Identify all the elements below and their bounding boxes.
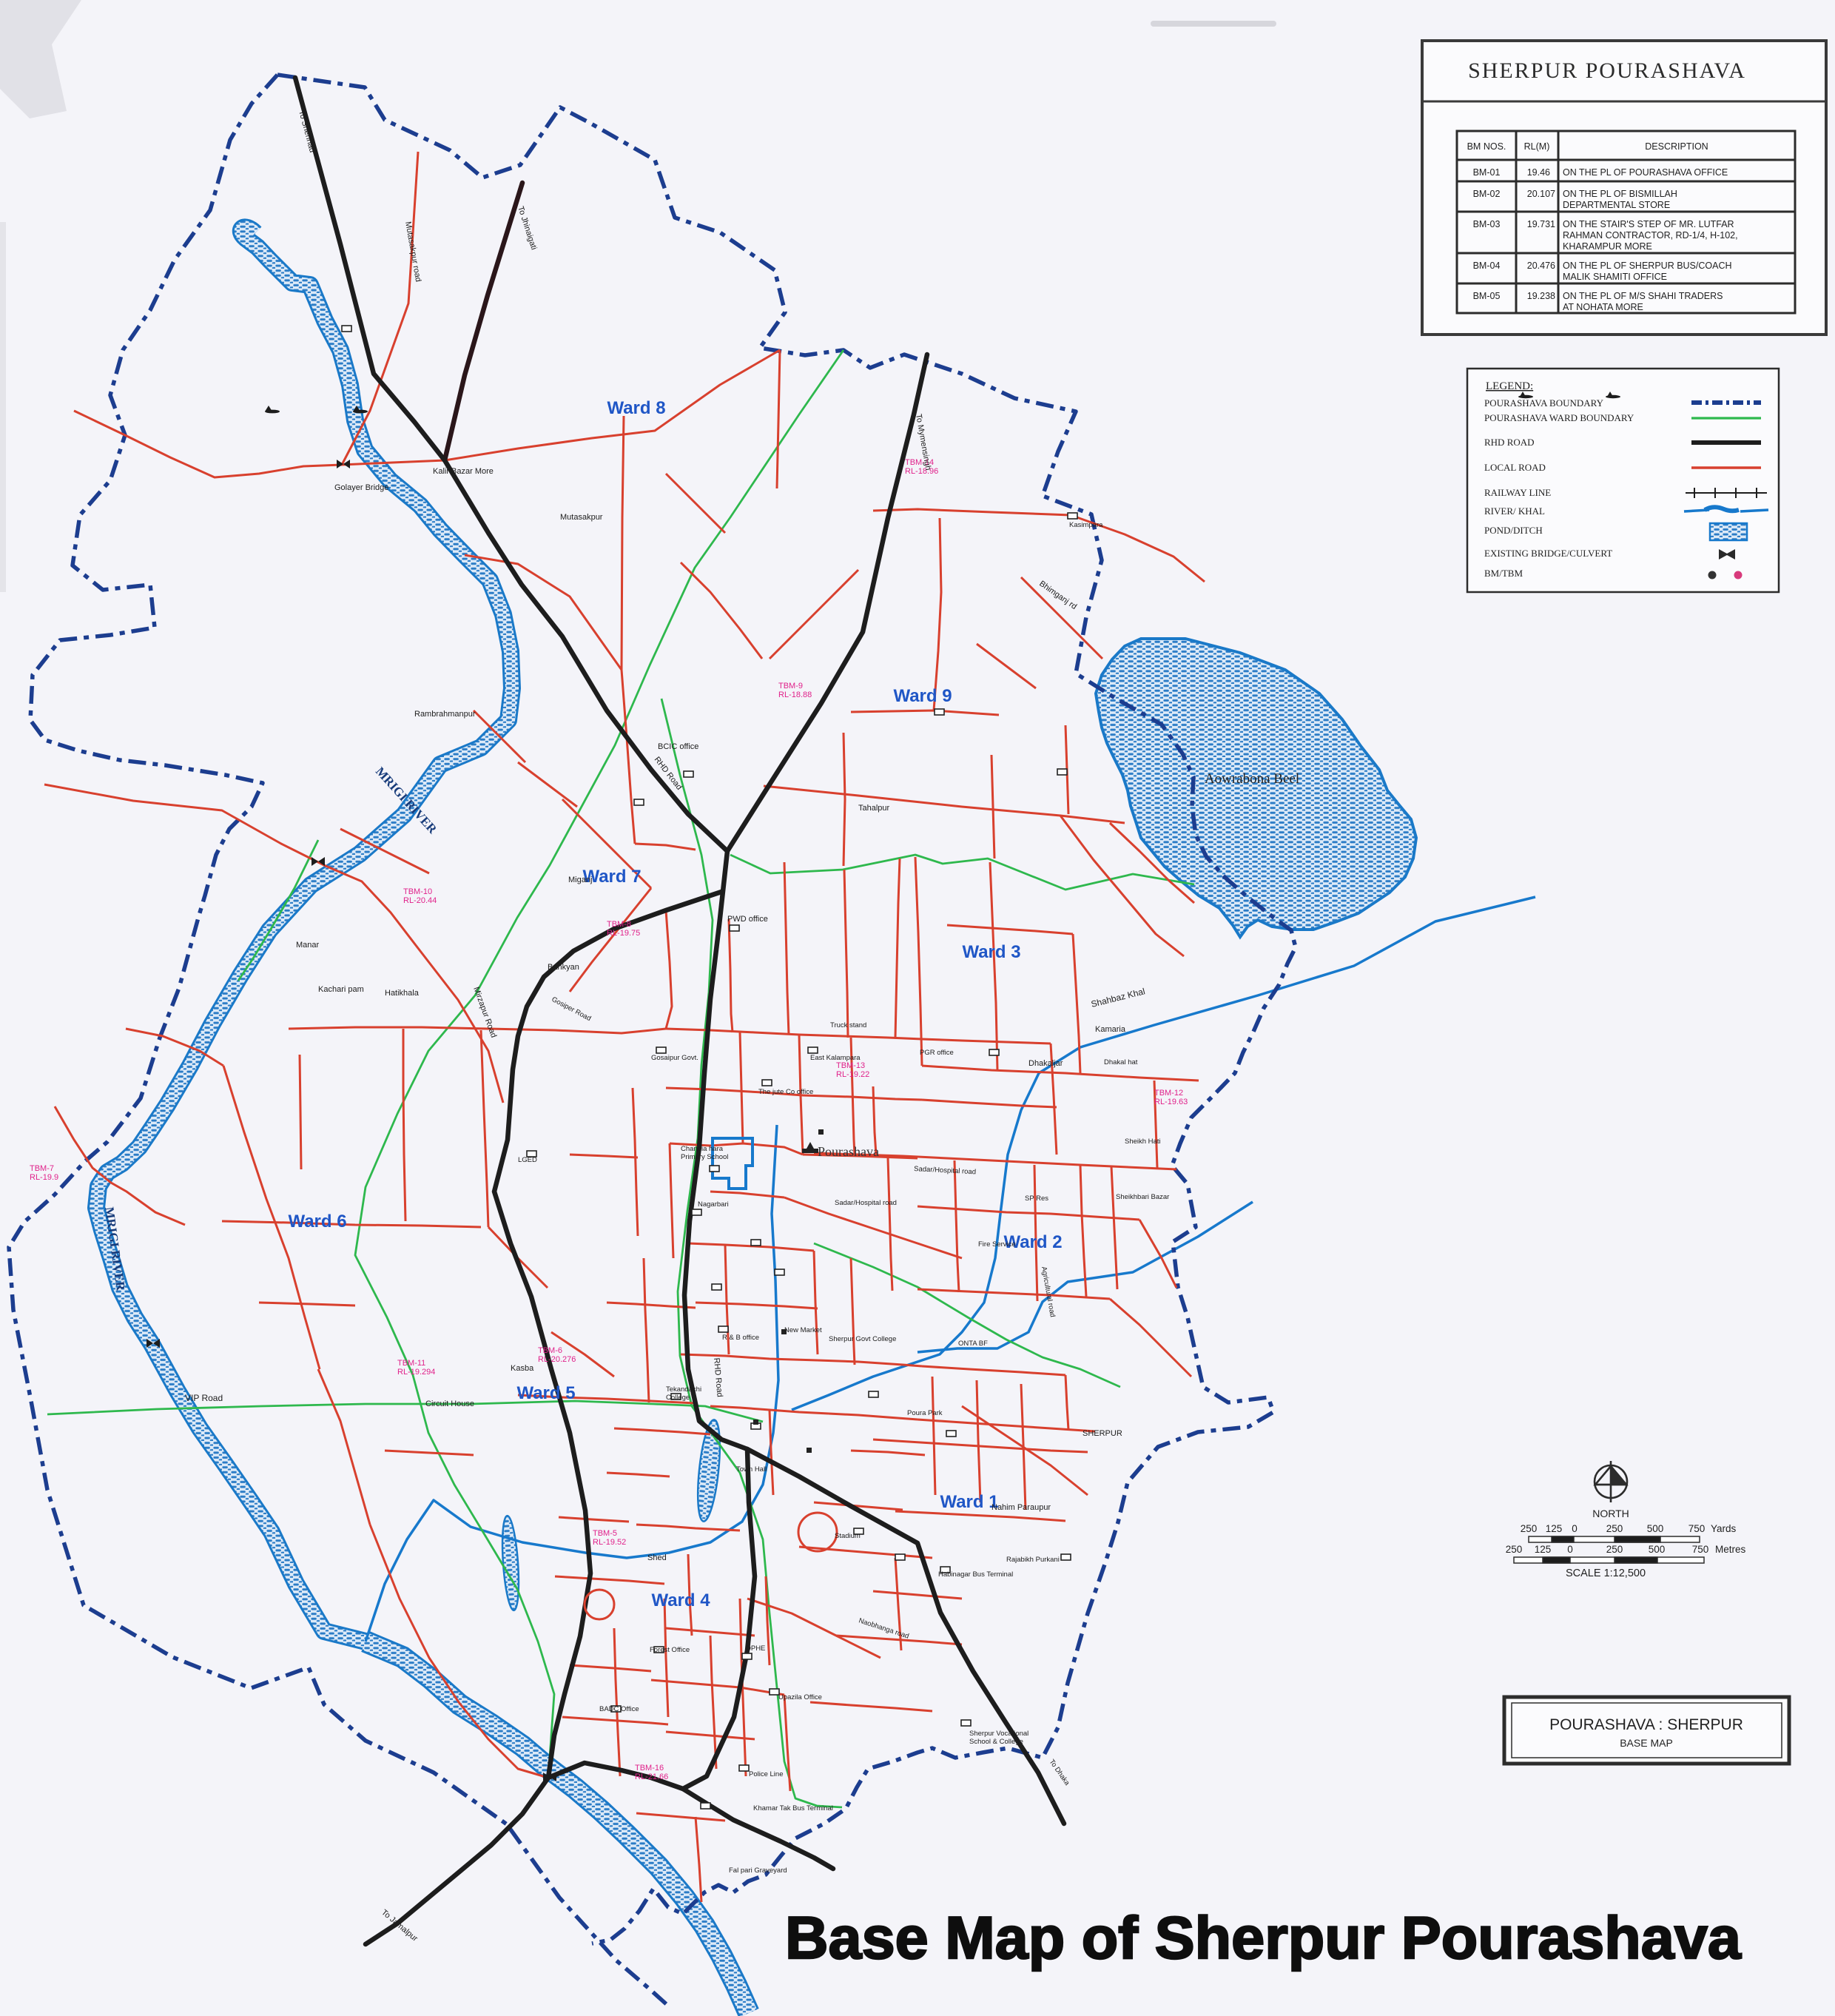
svg-text:BADC Office: BADC Office (599, 1705, 639, 1713)
svg-text:Shed: Shed (647, 1553, 667, 1562)
svg-text:TBM-16: TBM-16 (635, 1764, 664, 1773)
svg-text:ON THE PL OF POURASHAVA OFFICE: ON THE PL OF POURASHAVA OFFICE (1563, 167, 1728, 178)
svg-text:250: 250 (1606, 1523, 1623, 1534)
svg-text:19.238: 19.238 (1527, 291, 1555, 301)
svg-text:Town Hall: Town Hall (736, 1465, 767, 1474)
svg-text:College: College (666, 1394, 690, 1402)
svg-text:RL-20.276: RL-20.276 (538, 1355, 576, 1364)
svg-text:Kasimpara: Kasimpara (1069, 521, 1103, 529)
svg-text:BASE MAP: BASE MAP (1620, 1737, 1673, 1749)
svg-text:LGED: LGED (518, 1156, 537, 1164)
svg-text:DESCRIPTION: DESCRIPTION (1645, 141, 1708, 152)
svg-text:Chandia hara: Chandia hara (681, 1145, 724, 1153)
svg-text:KHARAMPUR MORE: KHARAMPUR MORE (1563, 241, 1652, 252)
svg-text:RL-19.22: RL-19.22 (836, 1070, 869, 1079)
svg-text:RL-21.66: RL-21.66 (635, 1773, 668, 1781)
svg-text:Ward 3: Ward 3 (962, 942, 1020, 962)
svg-text:ON THE STAIR'S STEP OF MR. LUT: ON THE STAIR'S STEP OF MR. LUTFAR (1563, 219, 1734, 229)
svg-text:RL-19.75: RL-19.75 (607, 929, 640, 938)
svg-text:Tahalpur: Tahalpur (858, 804, 890, 813)
svg-text:TBM-5: TBM-5 (593, 1529, 617, 1538)
svg-text:Rajabikh Purkani: Rajabikh Purkani (1006, 1556, 1060, 1564)
svg-text:Manar: Manar (296, 941, 320, 950)
svg-text:19.731: 19.731 (1527, 219, 1555, 229)
svg-text:Ward 4: Ward 4 (651, 1590, 710, 1610)
svg-text:RAILWAY LINE: RAILWAY LINE (1484, 487, 1551, 498)
svg-text:ON THE PL OF BISMILLAH: ON THE PL OF BISMILLAH (1563, 189, 1677, 199)
svg-text:BM-04: BM-04 (1473, 261, 1501, 271)
svg-text:TBM-7: TBM-7 (30, 1164, 54, 1173)
svg-text:Forest Office: Forest Office (650, 1646, 690, 1654)
svg-text:20.476: 20.476 (1527, 261, 1555, 271)
svg-text:Sherpur Vocational: Sherpur Vocational (969, 1730, 1028, 1738)
svg-text:BM NOS.: BM NOS. (1467, 141, 1506, 152)
svg-text:0: 0 (1567, 1544, 1573, 1555)
svg-text:250: 250 (1506, 1544, 1523, 1555)
svg-text:Sadar/Hospital road: Sadar/Hospital road (835, 1199, 897, 1207)
svg-text:TBM-12: TBM-12 (1154, 1089, 1183, 1098)
svg-text:RL-19.9: RL-19.9 (30, 1173, 58, 1182)
svg-text:Kamaria: Kamaria (1095, 1025, 1126, 1034)
svg-text:East Kalampara: East Kalampara (810, 1054, 861, 1062)
svg-text:Yards: Yards (1711, 1523, 1737, 1534)
svg-text:Habinagar Bus Terminal: Habinagar Bus Terminal (938, 1570, 1013, 1579)
svg-text:ONTA BF: ONTA BF (958, 1340, 988, 1348)
svg-text:Sheikh Hati: Sheikh Hati (1125, 1138, 1161, 1146)
svg-text:Upazila Office: Upazila Office (778, 1693, 822, 1701)
svg-text:BM/TBM: BM/TBM (1484, 568, 1523, 579)
svg-text:MALIK SHAMITI OFFICE: MALIK SHAMITI OFFICE (1563, 272, 1667, 282)
svg-text:POND/DITCH: POND/DITCH (1484, 525, 1543, 536)
svg-text:BM-05: BM-05 (1473, 291, 1501, 301)
svg-text:RAHMAN CONTRACTOR, RD-1/4, H-1: RAHMAN CONTRACTOR, RD-1/4, H-102, (1563, 230, 1738, 241)
svg-text:ON THE PL OF M/S SHAHI TRADERS: ON THE PL OF M/S SHAHI TRADERS (1563, 291, 1723, 301)
svg-text:BM-03: BM-03 (1473, 219, 1501, 229)
svg-text:The jute Co office: The jute Co office (758, 1088, 813, 1096)
svg-text:Khamar Tak Bus Terminal: Khamar Tak Bus Terminal (753, 1804, 833, 1812)
svg-text:Ward 5: Ward 5 (516, 1383, 575, 1403)
svg-text:TBM-9: TBM-9 (778, 682, 803, 691)
svg-text:RL(M): RL(M) (1524, 141, 1550, 152)
svg-text:RL-19.294: RL-19.294 (397, 1368, 435, 1377)
svg-text:R & B office: R & B office (722, 1334, 759, 1342)
svg-text:TBM-8: TBM-8 (607, 920, 631, 929)
svg-text:RL-19.52: RL-19.52 (593, 1538, 626, 1547)
svg-text:LEGEND:: LEGEND: (1486, 380, 1533, 392)
svg-text:19.46: 19.46 (1527, 167, 1550, 178)
svg-text:SHERPUR: SHERPUR (1083, 1429, 1122, 1438)
svg-text:RL-18.88: RL-18.88 (778, 691, 812, 699)
svg-text:Kasba: Kasba (511, 1364, 534, 1373)
svg-text:PWD office: PWD office (727, 915, 768, 924)
svg-text:Ward 9: Ward 9 (893, 686, 952, 706)
svg-text:Primary School: Primary School (681, 1153, 728, 1161)
svg-text:Truck stand: Truck stand (830, 1021, 866, 1029)
svg-text:Metres: Metres (1715, 1544, 1746, 1555)
svg-text:Base Map of Sherpur Pourashava: Base Map of Sherpur Pourashava (785, 1905, 1742, 1972)
svg-text:Police Line: Police Line (749, 1770, 783, 1778)
svg-text:125: 125 (1535, 1544, 1552, 1555)
svg-text:Mutasakpur: Mutasakpur (560, 513, 603, 522)
svg-text:Golayer Bridge: Golayer Bridge (334, 483, 388, 492)
svg-text:POURASHAVA WARD BOUNDARY: POURASHAVA WARD BOUNDARY (1484, 412, 1634, 423)
svg-text:TBM-6: TBM-6 (538, 1346, 562, 1355)
svg-text:RL-20.44: RL-20.44 (403, 896, 437, 905)
svg-text:500: 500 (1649, 1544, 1666, 1555)
svg-text:POURASHAVA BOUNDARY: POURASHAVA BOUNDARY (1484, 397, 1604, 409)
svg-text:Kalir Bazar More: Kalir Bazar More (433, 467, 494, 476)
svg-text:Dhakaljar: Dhakaljar (1028, 1059, 1063, 1068)
svg-text:250: 250 (1521, 1523, 1538, 1534)
svg-text:RL-18.96: RL-18.96 (905, 467, 938, 476)
svg-text:LOCAL ROAD: LOCAL ROAD (1484, 462, 1546, 473)
svg-text:125: 125 (1546, 1523, 1563, 1534)
svg-text:Sherpur Govt College: Sherpur Govt College (829, 1335, 896, 1343)
svg-text:Fal pari Graveyard: Fal pari Graveyard (729, 1867, 787, 1875)
svg-text:Dhakal hat: Dhakal hat (1104, 1058, 1138, 1066)
svg-text:Hatikhala: Hatikhala (385, 989, 420, 998)
svg-text:BM-02: BM-02 (1473, 189, 1501, 199)
svg-text:Ward 6: Ward 6 (288, 1212, 346, 1232)
svg-text:0: 0 (1572, 1523, 1578, 1534)
svg-text:Circuit House: Circuit House (425, 1400, 474, 1408)
svg-text:Miganj: Miganj (568, 876, 592, 884)
svg-text:BCIC office: BCIC office (658, 742, 698, 751)
svg-text:Ward 1: Ward 1 (940, 1492, 998, 1512)
svg-text:Tekandachi: Tekandachi (666, 1385, 701, 1394)
svg-text:NORTH: NORTH (1592, 1508, 1629, 1519)
svg-text:750: 750 (1692, 1544, 1709, 1555)
svg-text:Nahim Paraupur: Nahim Paraupur (991, 1503, 1051, 1512)
svg-text:VIP Road: VIP Road (185, 1393, 223, 1403)
svg-text:Fire Service: Fire Service (978, 1240, 1016, 1249)
svg-text:Sheikhbari Bazar: Sheikhbari Bazar (1116, 1193, 1169, 1201)
svg-text:500: 500 (1647, 1523, 1664, 1534)
svg-text:RL-19.63: RL-19.63 (1154, 1098, 1188, 1106)
svg-text:SCALE 1:12,500: SCALE 1:12,500 (1566, 1568, 1646, 1579)
svg-text:TBM-13: TBM-13 (836, 1061, 865, 1070)
svg-text:DPHE: DPHE (746, 1644, 765, 1653)
svg-text:School & College: School & College (969, 1738, 1023, 1746)
svg-text:250: 250 (1606, 1544, 1623, 1555)
svg-text:TBM-11: TBM-11 (397, 1359, 425, 1368)
svg-text:SP Res: SP Res (1025, 1195, 1048, 1203)
svg-text:Kachari pam: Kachari pam (318, 985, 364, 994)
svg-text:Rambrahmanpur: Rambrahmanpur (414, 710, 476, 719)
svg-text:RHD ROAD: RHD ROAD (1484, 437, 1535, 448)
svg-text:20.107: 20.107 (1527, 189, 1555, 199)
svg-text:PGR office: PGR office (920, 1049, 954, 1057)
svg-text:Ward 8: Ward 8 (607, 398, 665, 418)
svg-text:AT NOHATA MORE: AT NOHATA MORE (1563, 302, 1643, 312)
svg-text:Bankyan: Bankyan (548, 963, 579, 972)
svg-text:ON THE PL OF SHERPUR BUS/COACH: ON THE PL OF SHERPUR BUS/COACH (1563, 261, 1732, 271)
svg-text:BM-01: BM-01 (1473, 167, 1501, 178)
svg-text:EXISTING BRIDGE/CULVERT: EXISTING BRIDGE/CULVERT (1484, 548, 1612, 559)
svg-text:TBM-10: TBM-10 (403, 887, 432, 896)
svg-text:Stadium: Stadium (835, 1532, 861, 1540)
svg-text:New Market: New Market (784, 1326, 822, 1334)
svg-text:Gosaipur Govt.: Gosaipur Govt. (651, 1054, 698, 1062)
svg-text:Pourashava: Pourashava (818, 1144, 879, 1159)
svg-text:750: 750 (1688, 1523, 1706, 1534)
svg-text:SHERPUR POURASHAVA: SHERPUR POURASHAVA (1468, 58, 1746, 83)
svg-text:POURASHAVA : SHERPUR: POURASHAVA : SHERPUR (1549, 1716, 1743, 1733)
svg-text:DEPARTMENTAL STORE: DEPARTMENTAL STORE (1563, 200, 1670, 210)
svg-text:RIVER/ KHAL: RIVER/ KHAL (1484, 505, 1545, 517)
svg-text:Poura Park: Poura Park (907, 1409, 943, 1417)
svg-text:Aowrabona Beel: Aowrabona Beel (1205, 771, 1299, 787)
svg-text:Nagarbari: Nagarbari (698, 1200, 729, 1209)
